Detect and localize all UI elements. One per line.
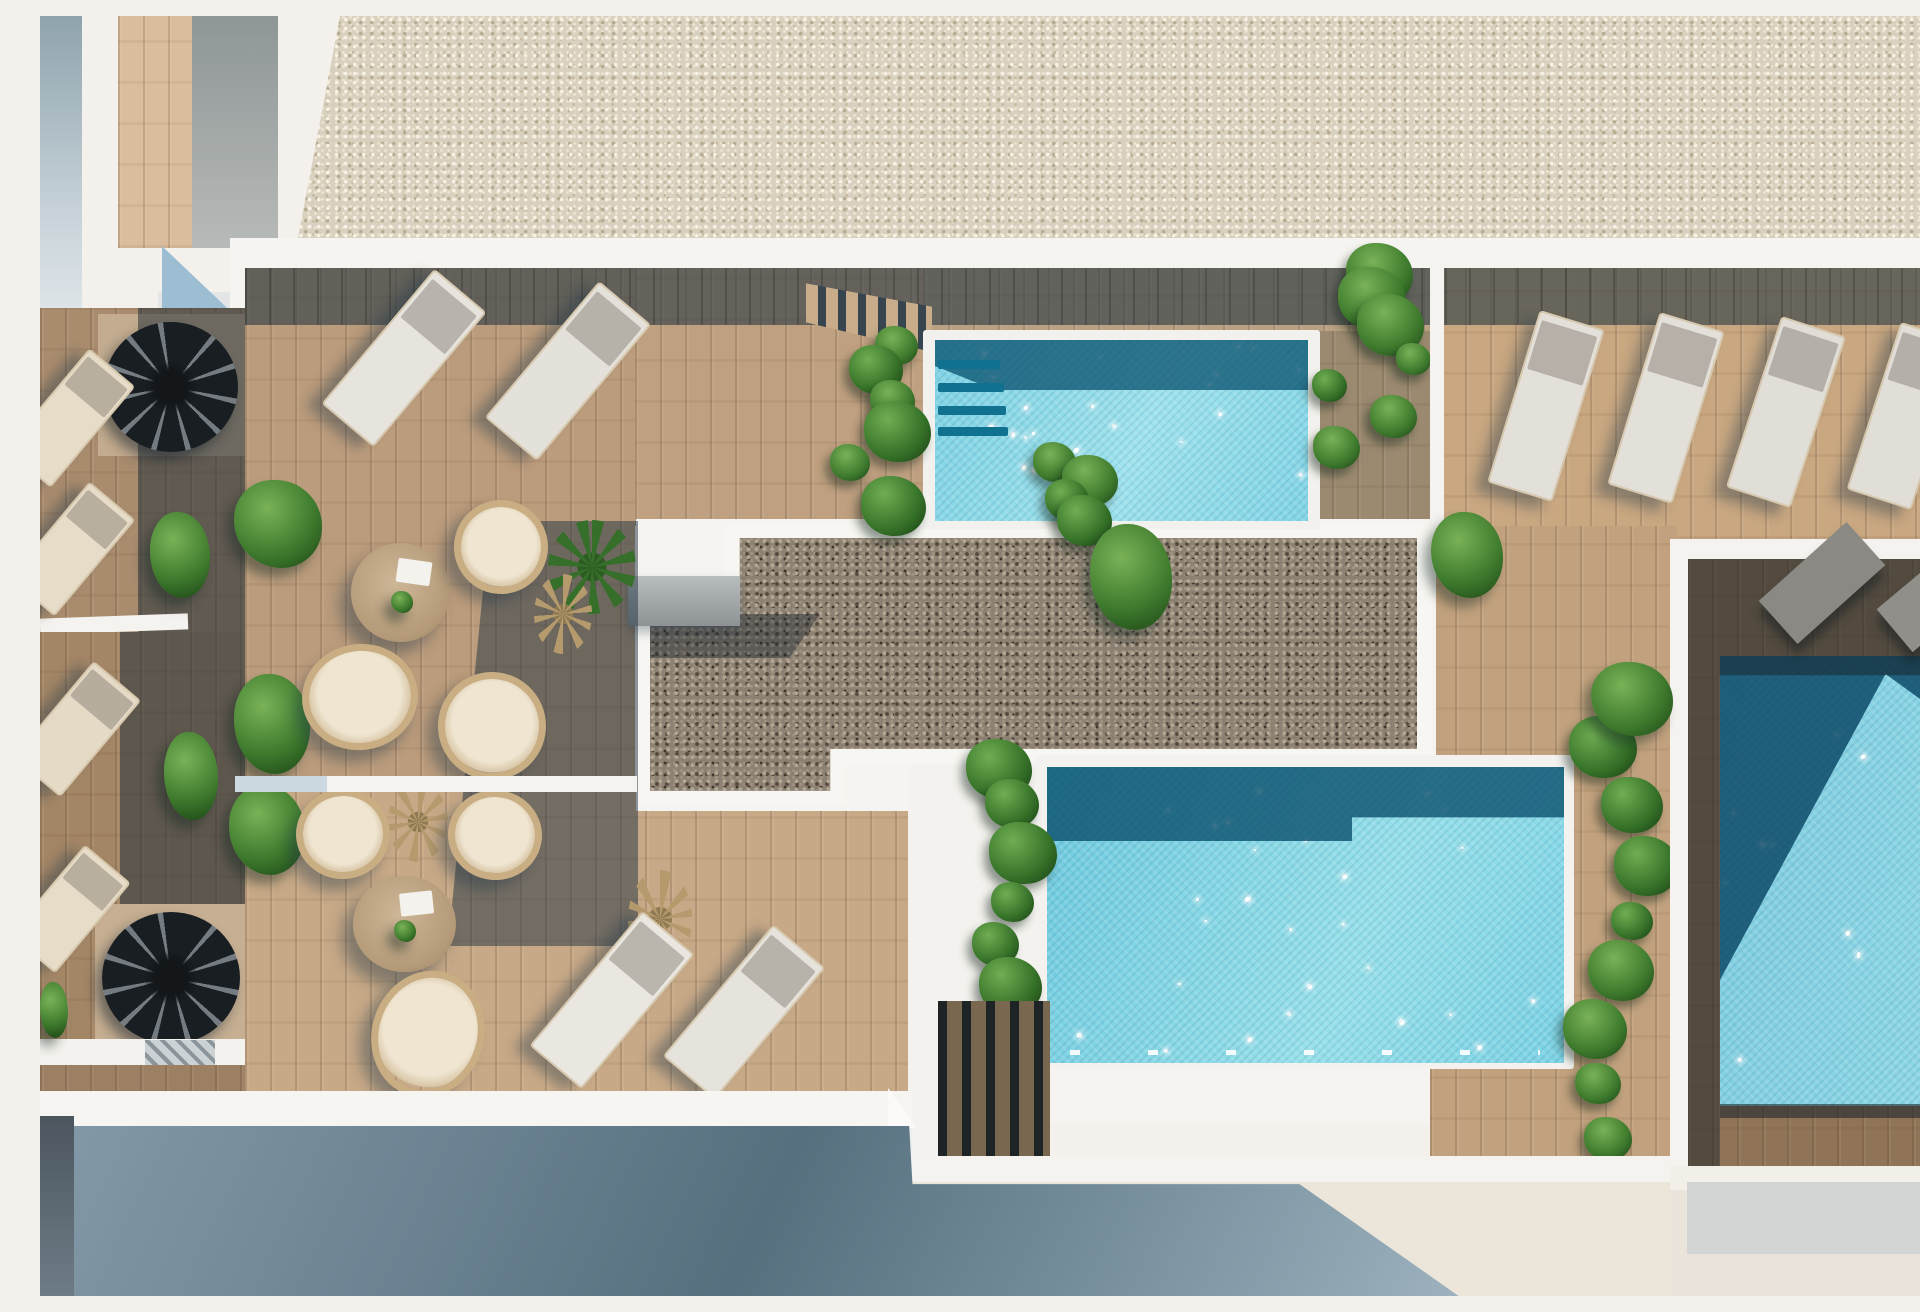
white-wall-pool3-top: [1670, 539, 1920, 559]
dry-palm-1: [534, 574, 592, 654]
pool1-step-2: [938, 383, 1004, 392]
water-sparkle: [1531, 999, 1535, 1003]
water-sparkle: [1011, 432, 1016, 437]
water-sparkle: [1032, 432, 1035, 435]
wood-panel-topleft: [118, 16, 192, 248]
plant-leaves: [861, 476, 926, 536]
ground-shadow-left-strip: [40, 1116, 74, 1296]
plant-leaves: [1614, 836, 1679, 896]
water-sparkle: [1245, 897, 1251, 903]
grass-patch-left: [40, 982, 68, 1038]
plant-leaves: [1611, 902, 1652, 940]
plant-cluster-mid: [1020, 466, 1128, 530]
plant-pot-upper: [391, 591, 413, 613]
pool3-groove: [1720, 1104, 1920, 1118]
water-sparkle: [1857, 955, 1860, 958]
plant-leaves: [1601, 777, 1662, 833]
pool1-step-1: [938, 360, 1000, 369]
plant-leaves: [864, 401, 931, 462]
building-strip-left: [40, 16, 82, 308]
left-terrace-floor-bottom: [40, 1065, 245, 1093]
plant-leaves: [1396, 343, 1431, 375]
water-sparkle: [1289, 928, 1293, 932]
water-sparkle: [1024, 406, 1028, 410]
wall-band-bottom-mid: [910, 1156, 1672, 1182]
plant-leaves: [989, 822, 1057, 884]
plant-leaves: [830, 444, 870, 481]
plant-leaves: [1313, 426, 1360, 469]
plant-leaves: [991, 882, 1034, 922]
water-sparkle: [1074, 448, 1079, 453]
white-wall-pool3-left: [1670, 539, 1688, 1179]
dry-palm-2: [388, 782, 448, 862]
rooftop-terrace-render: [40, 16, 1920, 1296]
water-sparkle: [1204, 920, 1207, 923]
roof-gravel-strip: [298, 16, 1920, 238]
water-sparkle: [1287, 1012, 1291, 1016]
hatched-slab: [145, 1040, 215, 1067]
plant-pot-lower: [394, 920, 416, 942]
water-sparkle: [1861, 755, 1865, 759]
water-sparkle: [1846, 931, 1850, 935]
water-sparkle: [1196, 898, 1199, 901]
water-sparkle: [1299, 473, 1303, 477]
plant-leaves: [1370, 395, 1417, 438]
water-sparkle: [1367, 967, 1370, 970]
water-sparkle: [1857, 952, 1860, 955]
planter-pool2-right: [1560, 734, 1676, 1180]
water-sparkle: [1178, 983, 1180, 985]
book-on-table-upper: [395, 558, 432, 586]
plant-leaves: [985, 779, 1039, 829]
water-sparkle: [1254, 849, 1256, 851]
water-sparkle: [1091, 404, 1095, 408]
water-sparkle: [1307, 984, 1312, 989]
book-on-table-lower: [399, 890, 434, 916]
pool2-lane-dashes: [1070, 1050, 1540, 1055]
water-sparkle: [1180, 441, 1182, 443]
water-sparkle: [1461, 847, 1464, 850]
water-sparkle: [1112, 424, 1116, 428]
pool1-step-4: [938, 427, 1008, 436]
plant-leaves: [1584, 1117, 1631, 1160]
water-sparkle: [1077, 1033, 1082, 1038]
plant-leaves: [1588, 940, 1654, 1001]
water-sparkle: [1247, 1037, 1252, 1042]
wall-band-bottom-left: [40, 1091, 912, 1127]
water-sparkle: [1399, 1019, 1404, 1024]
planter-pool1-left: [830, 332, 926, 524]
concrete-slab: [628, 576, 740, 626]
water-sparkle: [1218, 412, 1222, 416]
ground-gray-band-right: [1687, 1182, 1920, 1254]
water-sparkle: [1342, 923, 1345, 926]
spiral-staircase-lower: [102, 912, 240, 1044]
water-sparkle: [1449, 1013, 1452, 1016]
white-wall-pool1-right: [1430, 264, 1444, 528]
planter-pool1-right: [1306, 264, 1430, 474]
water-sparkle: [1342, 874, 1347, 879]
water-sparkle: [1024, 436, 1027, 439]
planter-pool2-left: [972, 752, 1052, 1024]
pool1-step-3: [938, 406, 1006, 415]
water-sparkle: [1738, 1058, 1742, 1062]
plant-leaves: [1575, 1063, 1621, 1105]
gray-panel-topleft: [192, 16, 278, 248]
plant-leaves: [1312, 369, 1347, 402]
plant-leaves: [1563, 999, 1628, 1059]
deck-steps-block: [938, 1001, 1050, 1159]
wall-band-divider-shaded: [235, 776, 327, 792]
